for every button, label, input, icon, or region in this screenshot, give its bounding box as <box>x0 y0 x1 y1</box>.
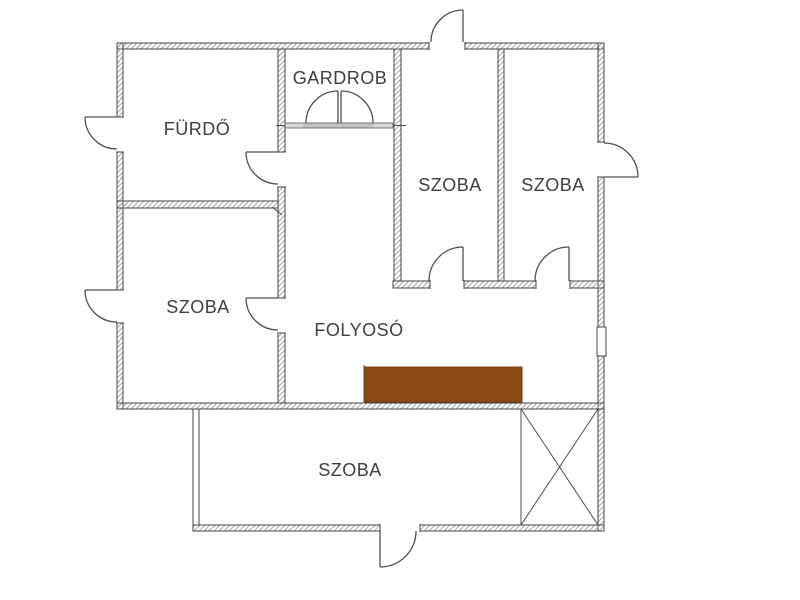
opening-furdo-exterior <box>116 117 124 152</box>
wall-exterior-left <box>117 43 123 409</box>
opening-furdo-corridor <box>277 152 286 187</box>
room-label-szoba-mid-left: SZOBA <box>166 297 230 317</box>
room-label-folyoso: FOLYOSÓ <box>314 319 403 340</box>
room-label-furdo: FÜRDŐ <box>164 118 231 139</box>
wall-exterior-top <box>117 43 604 49</box>
opening-szoba-mid-exterior <box>116 290 124 323</box>
room-label-szoba-bottom: SZOBA <box>318 460 382 480</box>
stairs-block <box>365 367 522 402</box>
wall-gardrob-east <box>394 49 401 281</box>
wall-bottom-main <box>117 403 604 409</box>
floor-plan: FÜRDŐ GARDROB SZOBA SZOBA SZOBA FOLYOSÓ … <box>0 0 800 600</box>
wall-between-top-rooms <box>498 49 504 281</box>
wall-extension-left-thin <box>193 409 199 525</box>
wall-corridor-west <box>278 49 285 403</box>
window-symbol-right-wall <box>597 327 606 356</box>
wall-rooms-south <box>393 281 604 288</box>
opening-bottom-exterior <box>380 524 420 532</box>
room-label-szoba-top-right: SZOBA <box>521 175 585 195</box>
room-label-szoba-top-left: SZOBA <box>418 175 482 195</box>
opening-top-exterior <box>429 42 465 50</box>
opening-szoba-mid-corridor <box>277 298 286 333</box>
wall-furdo-south <box>117 201 278 208</box>
opening-right-exterior <box>597 142 605 177</box>
opening-szoba-top-right <box>536 280 570 289</box>
gardrob-door-threshold <box>303 124 374 128</box>
opening-szoba-top-left <box>430 280 464 289</box>
room-label-gardrob: GARDROB <box>293 68 388 88</box>
